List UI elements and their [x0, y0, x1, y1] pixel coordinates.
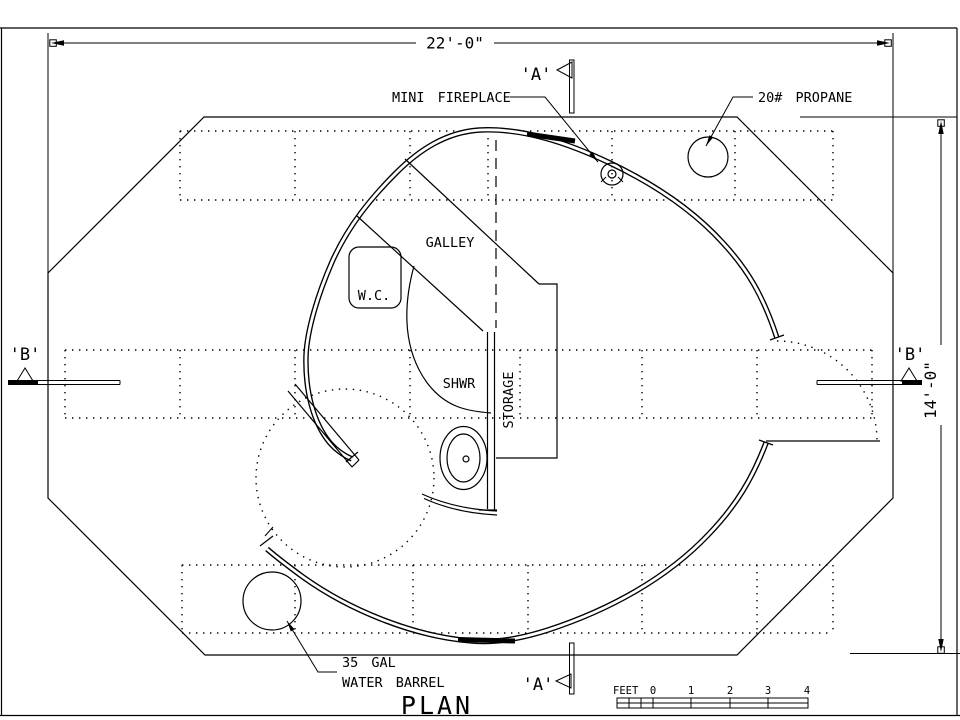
- dim-arrow-left: [51, 40, 64, 45]
- section-a-bottom-pole: [570, 643, 575, 694]
- section-marker-a-bottom: 'A': [523, 643, 574, 695]
- scale-tick-4: 4: [804, 685, 810, 697]
- water-barrel: [243, 572, 301, 630]
- galley-label: GALLEY: [426, 235, 475, 251]
- scale-bar-divisions: [617, 698, 808, 708]
- door-leaf-line-2: [295, 384, 359, 460]
- scale-tick-1: 1: [688, 685, 694, 697]
- dimension-height: 14'-0": [800, 117, 960, 654]
- wall-section-cut-bottom: [458, 640, 515, 642]
- propane-leader-line: [706, 97, 753, 146]
- plan-canvas: 22'-0" 14'-0": [0, 0, 960, 720]
- cad-plan-drawing: 22'-0" 14'-0": [0, 0, 960, 720]
- storage-box: [496, 284, 557, 458]
- barrel-label-line2: WATER BARREL: [342, 675, 445, 691]
- storage-label: STORAGE: [501, 372, 517, 429]
- leader-lines: [287, 97, 753, 672]
- scale-unit-label: FEET: [613, 685, 639, 697]
- wall-endcap-door-bottom: [260, 536, 273, 546]
- section-b-left-label: 'B': [10, 345, 41, 365]
- deck-dots-top-band: [180, 131, 833, 200]
- wc-label: W.C.: [358, 288, 391, 304]
- scale-bar: FEET 0 1 2 3 4: [613, 685, 810, 708]
- page-title: PLAN: [401, 691, 473, 720]
- wall-section-cut-top: [527, 134, 575, 141]
- section-b-right-label: 'B': [895, 345, 926, 365]
- section-a-bottom-label: 'A': [523, 675, 554, 695]
- section-a-top-label: 'A': [521, 65, 552, 85]
- height-dimension-text: 14'-0": [921, 361, 940, 419]
- door-leaf-endcap: [352, 460, 359, 467]
- shower-label: SHWR: [443, 376, 476, 392]
- barrel-label-line1: 35 GAL: [342, 655, 396, 671]
- width-dimension-text: 22'-0": [426, 34, 484, 53]
- scale-tick-0: 0: [650, 685, 656, 697]
- scale-tick-2: 2: [727, 685, 733, 697]
- section-a-bottom-flag-icon: [556, 674, 571, 688]
- dim-arrow-right: [877, 40, 890, 45]
- section-marker-b-right: 'B': [817, 345, 925, 385]
- interior-partitions: [349, 140, 557, 515]
- entry-swing-dotted-arc: [777, 341, 877, 441]
- propane-label: 20# PROPANE: [758, 90, 852, 106]
- section-b-right-flag-icon: [901, 368, 917, 381]
- wall-lower-arc-inner: [267, 443, 766, 642]
- feature-labels: MINI FIREPLACE 20# PROPANE GALLEY W.C. S…: [342, 90, 852, 691]
- section-marker-a-top: 'A': [521, 60, 574, 113]
- fireplace-label: MINI FIREPLACE: [392, 90, 511, 106]
- section-b-left-flag-icon: [17, 368, 33, 381]
- deck-dots-bottom-band: [182, 565, 833, 633]
- galley-wall-lower: [357, 216, 483, 331]
- door-jamb-tick: [265, 527, 273, 536]
- toilet-flush-dot: [463, 456, 469, 462]
- dim-arrow-down: [938, 639, 943, 652]
- wall-lower-arc-outer: [267, 443, 766, 642]
- dim-arrow-up: [938, 121, 943, 134]
- fixtures: [243, 137, 728, 630]
- door-leaf-line-1: [288, 391, 352, 467]
- scale-tick-3: 3: [765, 685, 771, 697]
- galley-wall-upper: [405, 159, 539, 284]
- section-marker-b-left: 'B': [8, 345, 120, 385]
- yurt-wall: [260, 130, 784, 642]
- door-swing-dotted-circle: [256, 389, 434, 567]
